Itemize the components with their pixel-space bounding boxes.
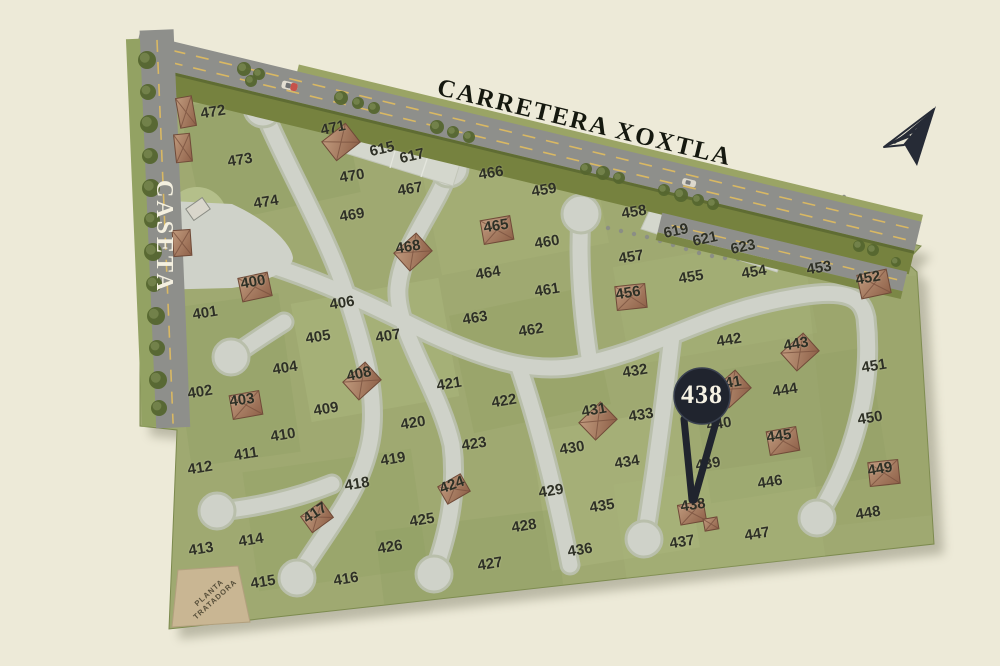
lot-label-438[interactable]: 438 xyxy=(679,495,706,515)
lot-label-407[interactable]: 407 xyxy=(374,326,401,347)
lot-label-418[interactable]: 418 xyxy=(343,474,370,495)
lot-label-444[interactable]: 444 xyxy=(771,380,798,401)
lot-label-468[interactable]: 468 xyxy=(394,237,421,258)
lot-label-436[interactable]: 436 xyxy=(566,540,593,561)
lot-label-445[interactable]: 445 xyxy=(765,426,792,446)
pin-lot-number[interactable]: 438 xyxy=(681,380,723,410)
lot-label-422[interactable]: 422 xyxy=(490,391,517,412)
lot-label-432[interactable]: 432 xyxy=(621,361,648,382)
lot-label-470[interactable]: 470 xyxy=(338,166,365,187)
lot-label-428[interactable]: 428 xyxy=(510,516,537,537)
lot-label-412[interactable]: 412 xyxy=(186,458,213,479)
treatment-plant-label: PLANTATRATADORA xyxy=(185,571,238,621)
lot-label-451[interactable]: 451 xyxy=(860,356,887,377)
lot-label-454[interactable]: 454 xyxy=(740,262,767,283)
lot-label-474[interactable]: 474 xyxy=(252,192,279,213)
lot-label-413[interactable]: 413 xyxy=(187,539,214,560)
lot-label-427[interactable]: 427 xyxy=(476,554,503,575)
lot-label-409[interactable]: 409 xyxy=(312,399,339,420)
lot-label-457[interactable]: 457 xyxy=(617,247,644,268)
lot-label-405[interactable]: 405 xyxy=(304,327,331,348)
lot-label-435[interactable]: 435 xyxy=(588,496,615,517)
lot-label-467[interactable]: 467 xyxy=(396,179,423,200)
lot-label-415[interactable]: 415 xyxy=(249,572,276,593)
lot-label-401[interactable]: 401 xyxy=(191,303,218,324)
gatehouse-label: CASETA xyxy=(150,180,177,294)
lot-label-433[interactable]: 433 xyxy=(627,405,654,426)
lot-label-462[interactable]: 462 xyxy=(517,320,544,341)
lot-label-471[interactable]: 471 xyxy=(319,117,347,139)
lot-label-424[interactable]: 424 xyxy=(437,473,466,498)
lot-label-455[interactable]: 455 xyxy=(677,267,704,288)
lot-label-440[interactable]: 440 xyxy=(705,414,732,435)
lot-label-621[interactable]: 621 xyxy=(691,228,719,250)
lot-label-434[interactable]: 434 xyxy=(613,452,640,473)
lot-label-429[interactable]: 429 xyxy=(537,481,564,502)
lot-label-459[interactable]: 459 xyxy=(530,180,557,201)
lot-label-425[interactable]: 425 xyxy=(408,510,435,531)
lot-label-437[interactable]: 437 xyxy=(668,532,695,553)
lot-label-465[interactable]: 465 xyxy=(482,216,509,237)
lot-label-453[interactable]: 453 xyxy=(805,258,832,279)
lot-label-417[interactable]: 417 xyxy=(300,499,330,527)
lot-label-456[interactable]: 456 xyxy=(614,283,641,304)
lot-label-426[interactable]: 426 xyxy=(376,537,403,558)
lot-label-419[interactable]: 419 xyxy=(379,449,406,470)
lot-label-406[interactable]: 406 xyxy=(328,293,355,314)
lot-label-408[interactable]: 408 xyxy=(345,363,373,385)
lot-label-447[interactable]: 447 xyxy=(743,524,770,545)
lot-label-420[interactable]: 420 xyxy=(399,413,426,434)
lot-label-617[interactable]: 617 xyxy=(398,145,426,167)
lot-label-450[interactable]: 450 xyxy=(856,408,883,429)
lot-label-466[interactable]: 466 xyxy=(477,163,504,184)
lot-label-423[interactable]: 423 xyxy=(460,434,487,455)
lot-label-421[interactable]: 421 xyxy=(435,374,462,395)
lot-label-448[interactable]: 448 xyxy=(854,503,881,524)
lot-label-615[interactable]: 615 xyxy=(368,138,396,160)
site-plan-map: CARRETERA XOXTLA CASETA PLANTATRATADORA … xyxy=(0,0,1000,666)
lot-label-619[interactable]: 619 xyxy=(662,220,690,242)
lot-label-410[interactable]: 410 xyxy=(269,425,296,446)
lot-label-411[interactable]: 411 xyxy=(233,444,260,465)
lot-label-430[interactable]: 430 xyxy=(558,438,585,459)
lot-label-473[interactable]: 473 xyxy=(226,150,253,171)
lot-label-416[interactable]: 416 xyxy=(332,569,359,590)
lot-label-442[interactable]: 442 xyxy=(715,330,742,351)
lot-label-439[interactable]: 439 xyxy=(694,454,721,475)
lot-label-404[interactable]: 404 xyxy=(271,358,298,379)
lot-label-472[interactable]: 472 xyxy=(199,102,226,123)
lot-label-623[interactable]: 623 xyxy=(729,236,757,258)
lot-label-400[interactable]: 400 xyxy=(239,271,267,292)
lot-label-414[interactable]: 414 xyxy=(237,530,264,551)
lot-label-402[interactable]: 402 xyxy=(186,382,213,403)
lot-label-461[interactable]: 461 xyxy=(533,280,560,301)
lot-label-452[interactable]: 452 xyxy=(854,267,882,288)
lot-label-431[interactable]: 431 xyxy=(580,399,608,420)
lot-label-443[interactable]: 443 xyxy=(782,333,810,354)
lot-label-469[interactable]: 469 xyxy=(338,205,365,226)
lot-label-403[interactable]: 403 xyxy=(228,390,255,410)
lot-label-458[interactable]: 458 xyxy=(620,202,647,223)
lot-label-446[interactable]: 446 xyxy=(756,472,783,493)
highway-name-label: CARRETERA XOXTLA xyxy=(434,74,734,172)
lot-label-460[interactable]: 460 xyxy=(533,232,560,253)
lot-label-463[interactable]: 463 xyxy=(461,308,488,329)
lot-label-449[interactable]: 449 xyxy=(866,458,894,479)
lot-label-464[interactable]: 464 xyxy=(474,263,501,284)
labels-layer: CARRETERA XOXTLA CASETA PLANTATRATADORA … xyxy=(0,0,1000,666)
